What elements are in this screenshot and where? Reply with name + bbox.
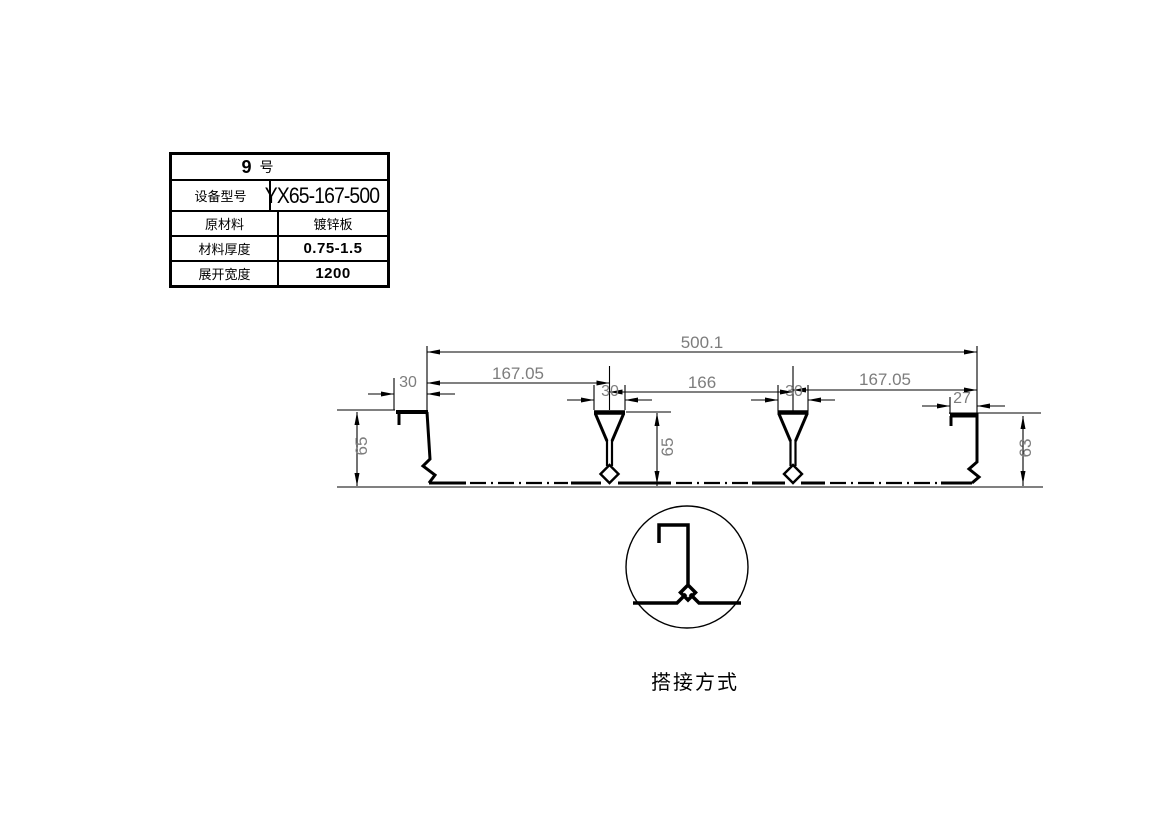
- extension-lines: [337, 346, 1043, 487]
- arrowheads: [355, 350, 1026, 487]
- right-edge-profile: [941, 416, 979, 484]
- rib-2: [752, 413, 825, 484]
- dim-left-edge-width-label: 30: [399, 374, 417, 391]
- detail-base-left: [633, 594, 686, 603]
- dim-rib-height-label: 65: [658, 438, 677, 457]
- dim-left-height-label: 65: [352, 437, 371, 456]
- profile-drawing: 500.1 167.05 166 167.05 30 30 30 27 65 6…: [0, 0, 1169, 827]
- dim-middle-span-label: 166: [688, 373, 716, 392]
- dim-rib1-width-label: 30: [601, 383, 619, 400]
- panel-profile: [396, 412, 979, 483]
- dim-left-span-label: 167.05: [492, 364, 544, 383]
- dim-total-width-label: 500.1: [681, 333, 724, 352]
- left-edge-profile: [396, 412, 466, 483]
- dim-rib2-width-label: 30: [785, 383, 803, 400]
- dim-right-edge-width-label: 27: [953, 390, 971, 407]
- detail-base-right: [690, 594, 741, 603]
- cad-canvas: 9 号 设备型号 YX65-167-500 原材料 镀锌板 材料厚度 0.75-…: [0, 0, 1169, 827]
- lap-joint-detail: 搭接方式: [626, 506, 748, 694]
- detail-hook-profile: [659, 525, 696, 600]
- detail-caption: 搭接方式: [651, 671, 739, 694]
- dim-right-span-label: 167.05: [859, 370, 911, 389]
- dim-right-height-label: 63: [1016, 439, 1035, 458]
